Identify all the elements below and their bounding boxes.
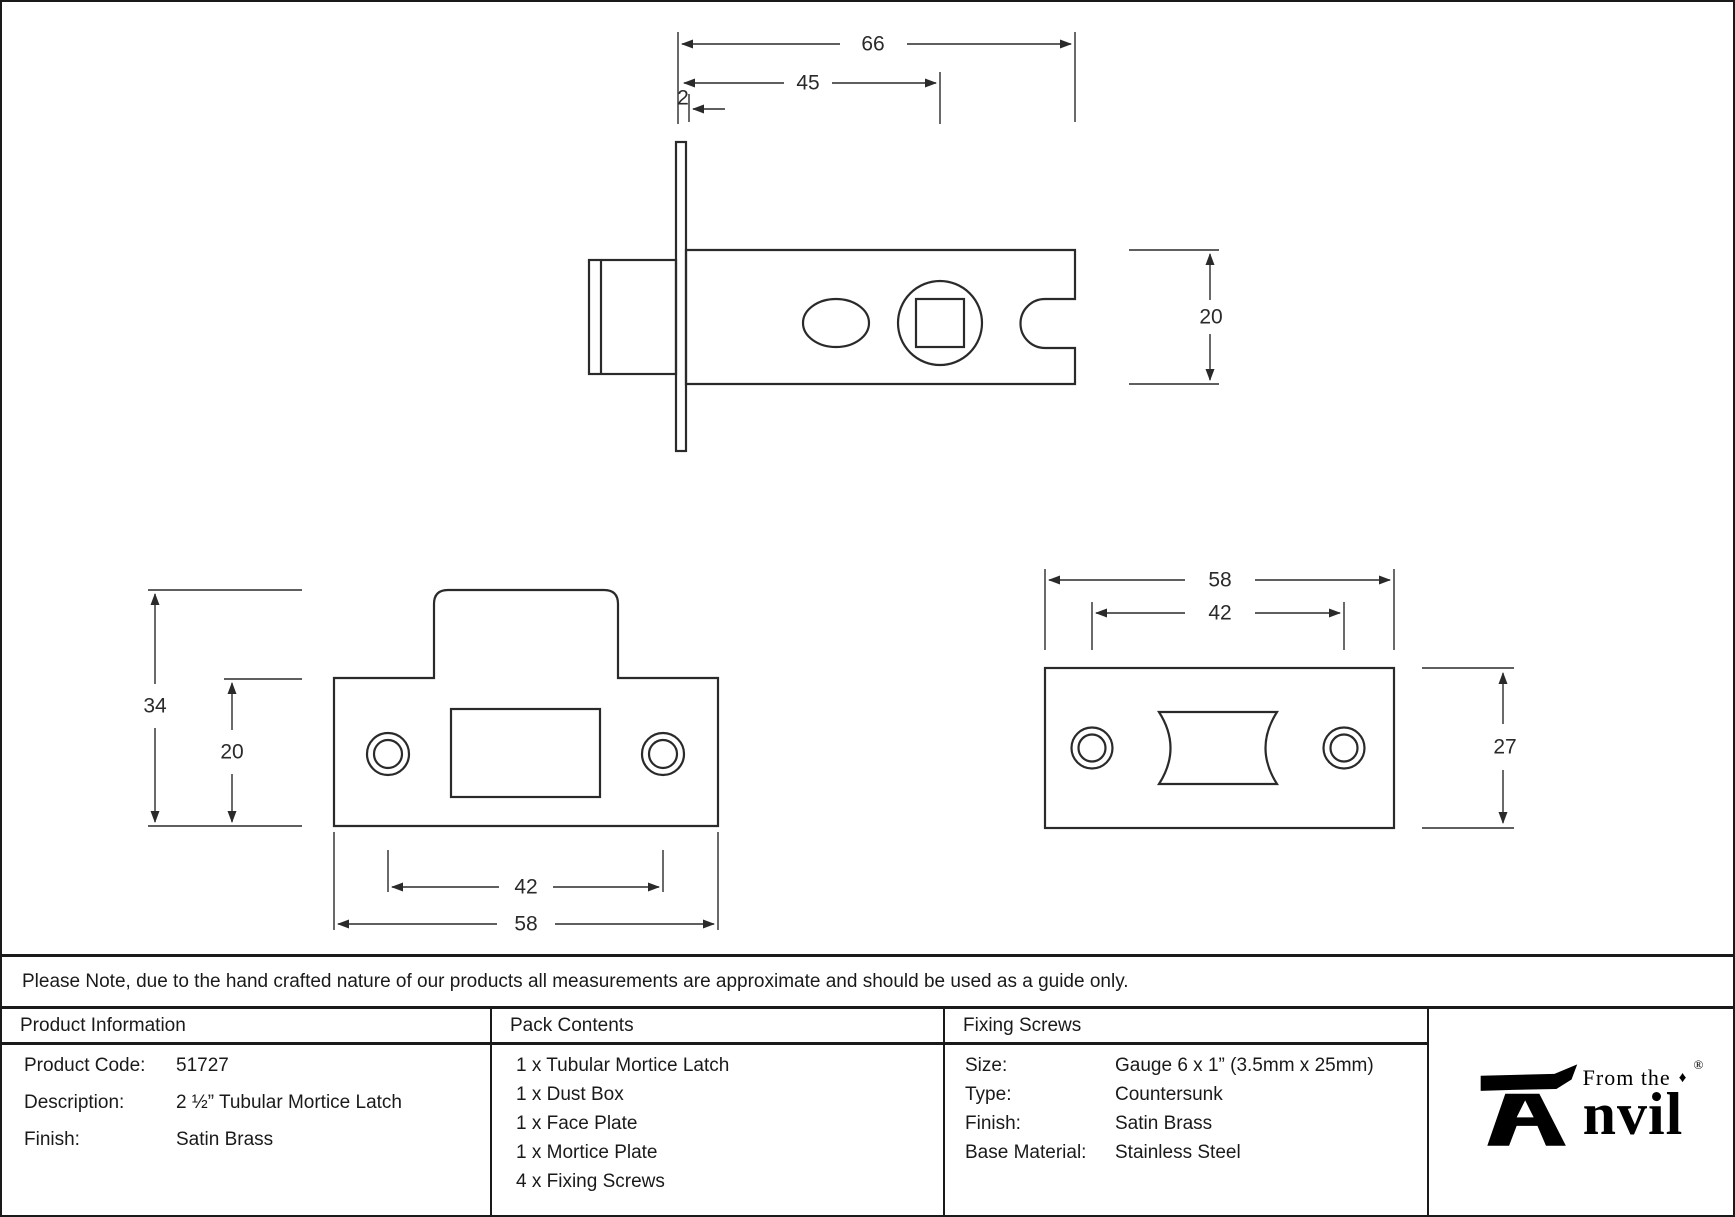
measurement-note-text: Please Note, due to the hand crafted nat… [22, 971, 1129, 993]
dim-mortice-width: 58 [1208, 569, 1231, 592]
screw-size-label: Size: [965, 1054, 1115, 1078]
dim-faceplate-width: 58 [514, 913, 537, 936]
latch-faceplate-bar [676, 142, 686, 451]
face-plate-screw-hole-left-inner [374, 740, 402, 768]
latch-case-outline [686, 250, 1075, 384]
product-info-table: Product Information Product Code: 51727 … [2, 1006, 1733, 1215]
dim-faceplate-screw-centres: 42 [514, 876, 537, 899]
side-view-latch [589, 142, 1075, 451]
technical-drawings: 66 45 2 20 [2, 2, 1733, 952]
measurement-note-band: Please Note, due to the hand crafted nat… [2, 954, 1733, 1006]
screw-base-material-label: Base Material: [965, 1141, 1115, 1165]
from-the-anvil-logo: From the ♦ nvil ® [1475, 1061, 1688, 1151]
finish-value: Satin Brass [176, 1128, 490, 1152]
dim-side-case-height: 20 [1199, 306, 1222, 329]
brand-logo-cell: From the ♦ nvil ® [1427, 1009, 1733, 1215]
finish-label: Finish: [24, 1128, 176, 1152]
pack-item: 1 x Dust Box [516, 1083, 943, 1107]
description-label: Description: [24, 1091, 176, 1115]
mortice-plate-view [1045, 668, 1394, 828]
pack-contents-list: 1 x Tubular Mortice Latch 1 x Dust Box 1… [492, 1054, 943, 1194]
pack-item: 1 x Tubular Mortice Latch [516, 1054, 943, 1078]
screw-base-material-value: Stainless Steel [1115, 1141, 1427, 1165]
screw-type-label: Type: [965, 1083, 1115, 1107]
pack-contents-column: Pack Contents 1 x Tubular Mortice Latch … [490, 1009, 943, 1215]
pack-contents-header: Pack Contents [492, 1009, 943, 1045]
product-information-rows: Product Code: 51727 Description: 2 ½” Tu… [2, 1054, 490, 1152]
fixing-screws-rows: Size: Gauge 6 x 1” (3.5mm x 25mm) Type: … [945, 1054, 1427, 1165]
spec-sheet: 66 45 2 20 [0, 0, 1735, 1217]
fixing-screws-column: Fixing Screws Size: Gauge 6 x 1” (3.5mm … [943, 1009, 1427, 1215]
dim-side-backset: 45 [796, 72, 819, 95]
dim-mortice-height: 27 [1493, 736, 1516, 759]
dim-mortice-screw-centres: 42 [1208, 602, 1231, 625]
side-view-dimensions [678, 32, 1219, 384]
product-code-label: Product Code: [24, 1054, 176, 1078]
face-plate-latch-opening [451, 709, 600, 797]
logo-anvil-text: nvil [1583, 1091, 1688, 1137]
face-plate-view [334, 590, 718, 826]
latch-spindle-circle [898, 281, 982, 365]
product-code-value: 51727 [176, 1054, 490, 1078]
latch-spindle-square [916, 299, 964, 347]
screw-size-value: Gauge 6 x 1” (3.5mm x 25mm) [1115, 1054, 1427, 1078]
mortice-screw-hole-right-inner [1331, 735, 1358, 762]
pack-contents-header-label: Pack Contents [510, 1015, 634, 1037]
product-information-header-label: Product Information [20, 1015, 186, 1037]
dim-faceplate-plate-height: 20 [220, 741, 243, 764]
mortice-screw-hole-left-inner [1079, 735, 1106, 762]
pack-item: 4 x Fixing Screws [516, 1170, 943, 1194]
mortice-plate-opening [1159, 712, 1277, 784]
anvil-a-icon [1475, 1061, 1581, 1151]
mortice-plate-dimensions [1045, 569, 1514, 828]
screw-type-value: Countersunk [1115, 1083, 1427, 1107]
registered-trademark-symbol: ® [1693, 1057, 1703, 1073]
screw-finish-label: Finish: [965, 1112, 1115, 1136]
pack-item: 1 x Face Plate [516, 1112, 943, 1136]
latch-oval-hole [803, 299, 869, 347]
dim-faceplate-overall-height: 34 [143, 695, 167, 718]
screw-finish-value: Satin Brass [1115, 1112, 1427, 1136]
fixing-screws-header: Fixing Screws [945, 1009, 1427, 1045]
product-information-header: Product Information [2, 1009, 490, 1045]
mortice-plate-outline [1045, 668, 1394, 828]
product-information-column: Product Information Product Code: 51727 … [2, 1009, 490, 1215]
face-plate-screw-hole-right-inner [649, 740, 677, 768]
description-value: 2 ½” Tubular Mortice Latch [176, 1091, 490, 1115]
dim-side-overall-length: 66 [861, 33, 884, 56]
fixing-screws-header-label: Fixing Screws [963, 1015, 1081, 1037]
dim-side-faceplate-thickness: 2 [677, 87, 689, 110]
pack-item: 1 x Mortice Plate [516, 1141, 943, 1165]
